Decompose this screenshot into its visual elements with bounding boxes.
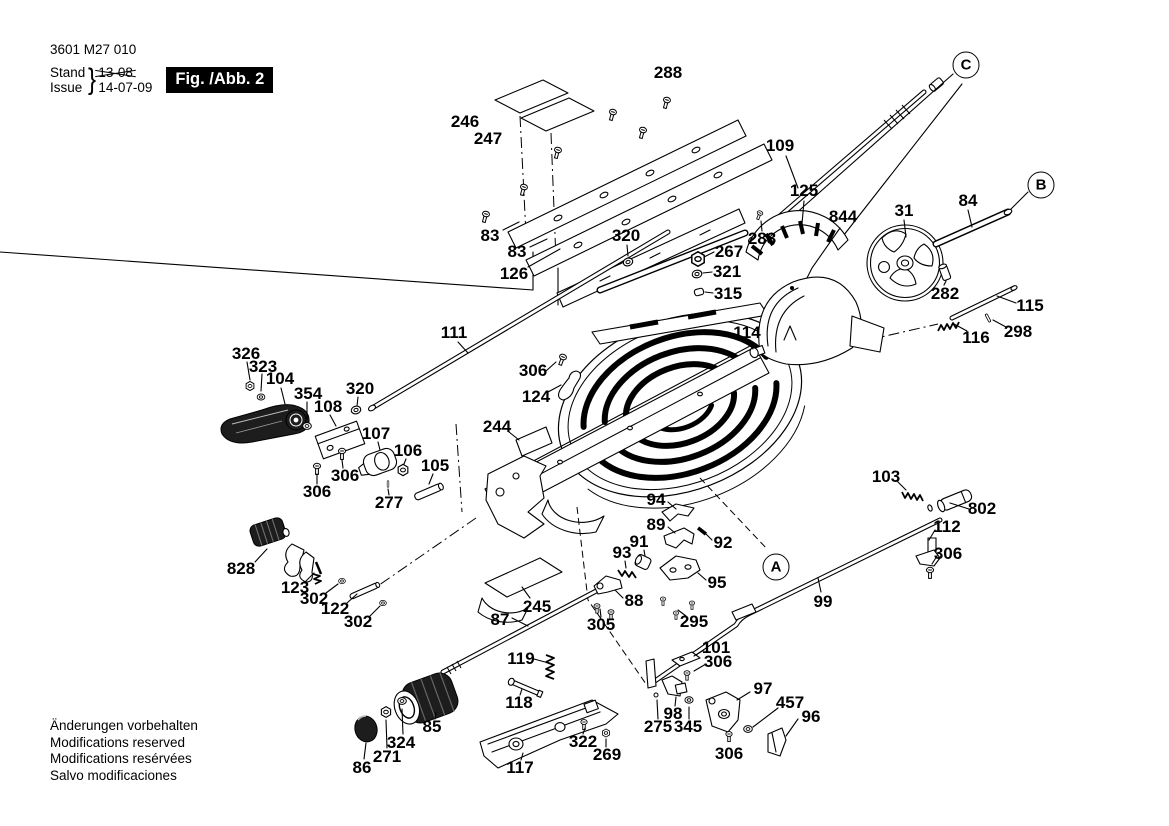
part-label-315: 315 — [714, 284, 742, 304]
footer-line: Änderungen vorbehalten — [50, 718, 198, 735]
part-label-288: 288 — [654, 63, 682, 83]
part-label-97: 97 — [754, 679, 773, 699]
part-label-457: 457 — [776, 693, 804, 713]
part-label-31: 31 — [895, 201, 914, 221]
part-label-247: 247 — [474, 129, 502, 149]
part-label-94: 94 — [647, 490, 666, 510]
part-label-115: 115 — [1016, 296, 1043, 316]
part-label-112: 112 — [933, 517, 960, 537]
part-label-295: 295 — [680, 612, 708, 632]
part-label-107: 107 — [362, 424, 390, 444]
exploded-diagram: .ln{stroke:#000;stroke-width:1.1;fill:no… — [0, 0, 1169, 826]
part-label-302: 302 — [344, 612, 372, 632]
part-label-92: 92 — [714, 533, 733, 553]
part-label-321: 321 — [713, 262, 741, 282]
part-label-88: 88 — [625, 591, 644, 611]
part-label-306: 306 — [704, 652, 732, 672]
part-label-116: 116 — [962, 328, 989, 348]
part-label-93: 93 — [613, 543, 632, 563]
part-label-87: 87 — [491, 610, 510, 630]
part-label-306: 306 — [331, 466, 359, 486]
part-label-271: 271 — [373, 747, 401, 767]
part-label-114: 114 — [733, 323, 760, 343]
part-label-103: 103 — [872, 467, 900, 487]
part-label-105: 105 — [421, 456, 449, 476]
part-label-99: 99 — [814, 592, 833, 612]
part-label-275: 275 — [644, 717, 672, 737]
parts-diagram-page: 3601 M27 010 Stand Issue } 13-08 14-07-0… — [0, 0, 1169, 826]
ref-circle-c: C — [953, 52, 980, 79]
part-label-89: 89 — [647, 515, 666, 535]
figure-label-box: Fig. /Abb. 2 — [166, 67, 273, 93]
part-label-95: 95 — [708, 573, 727, 593]
part-label-111: 111 — [441, 323, 468, 343]
part-label-119: 119 — [507, 649, 534, 669]
title-block: 3601 M27 010 Stand Issue } 13-08 14-07-0… — [50, 42, 273, 97]
footer-line: Salvo modificaciones — [50, 768, 198, 785]
part-label-306: 306 — [519, 361, 547, 381]
part-label-802: 802 — [968, 499, 996, 519]
part-label-83: 83 — [508, 242, 527, 262]
part-label-267: 267 — [715, 242, 743, 262]
part-label-828: 828 — [227, 559, 255, 579]
issue-label: Issue — [50, 80, 85, 95]
part-label-125: 125 — [790, 181, 818, 201]
document-part-number: 3601 M27 010 — [50, 42, 273, 57]
part-label-106: 106 — [394, 441, 422, 461]
part-label-245: 245 — [523, 597, 551, 617]
modifications-footer: Änderungen vorbehaltenModifications rese… — [50, 718, 198, 784]
part-label-85: 85 — [423, 717, 442, 737]
part-label-96: 96 — [802, 707, 821, 727]
part-label-91: 91 — [630, 532, 649, 552]
part-label-269: 269 — [593, 745, 621, 765]
stand-date-struck: 13-08 — [98, 65, 133, 80]
part-label-844: 844 — [829, 207, 857, 227]
part-label-305: 305 — [587, 615, 615, 635]
footer-line: Modifications reserved — [50, 735, 198, 752]
part-label-104: 104 — [266, 369, 294, 389]
part-label-283: 283 — [748, 229, 776, 249]
ref-circle-a: A — [763, 554, 790, 581]
part-label-244: 244 — [483, 417, 511, 437]
part-label-306: 306 — [303, 482, 331, 502]
issue-date: 14-07-09 — [98, 80, 152, 95]
part-label-306: 306 — [715, 744, 743, 764]
part-label-117: 117 — [506, 758, 533, 778]
part-label-109: 109 — [766, 136, 794, 156]
part-label-320: 320 — [612, 226, 640, 246]
pull-rod-99-group — [646, 481, 973, 688]
part-label-124: 124 — [522, 387, 550, 407]
part-label-108: 108 — [314, 397, 342, 417]
part-label-345: 345 — [674, 717, 702, 737]
part-label-84: 84 — [959, 191, 978, 211]
stand-label: Stand — [50, 65, 85, 80]
part-label-306: 306 — [934, 544, 962, 564]
rod-84 — [936, 192, 1028, 285]
part-label-282: 282 — [931, 284, 959, 304]
part-label-118: 118 — [505, 693, 532, 713]
ref-circle-b: B — [1028, 172, 1055, 199]
brace-glyph: } — [88, 63, 96, 97]
stand-issue-block: Stand Issue } 13-08 14-07-09 — [50, 63, 152, 97]
footer-line: Modifications resérvées — [50, 751, 198, 768]
part-label-86: 86 — [353, 758, 372, 778]
part-label-320: 320 — [346, 379, 374, 399]
part-label-298: 298 — [1004, 322, 1032, 342]
part-label-83: 83 — [481, 226, 500, 246]
part-label-277: 277 — [375, 493, 403, 513]
part-label-126: 126 — [500, 264, 528, 284]
